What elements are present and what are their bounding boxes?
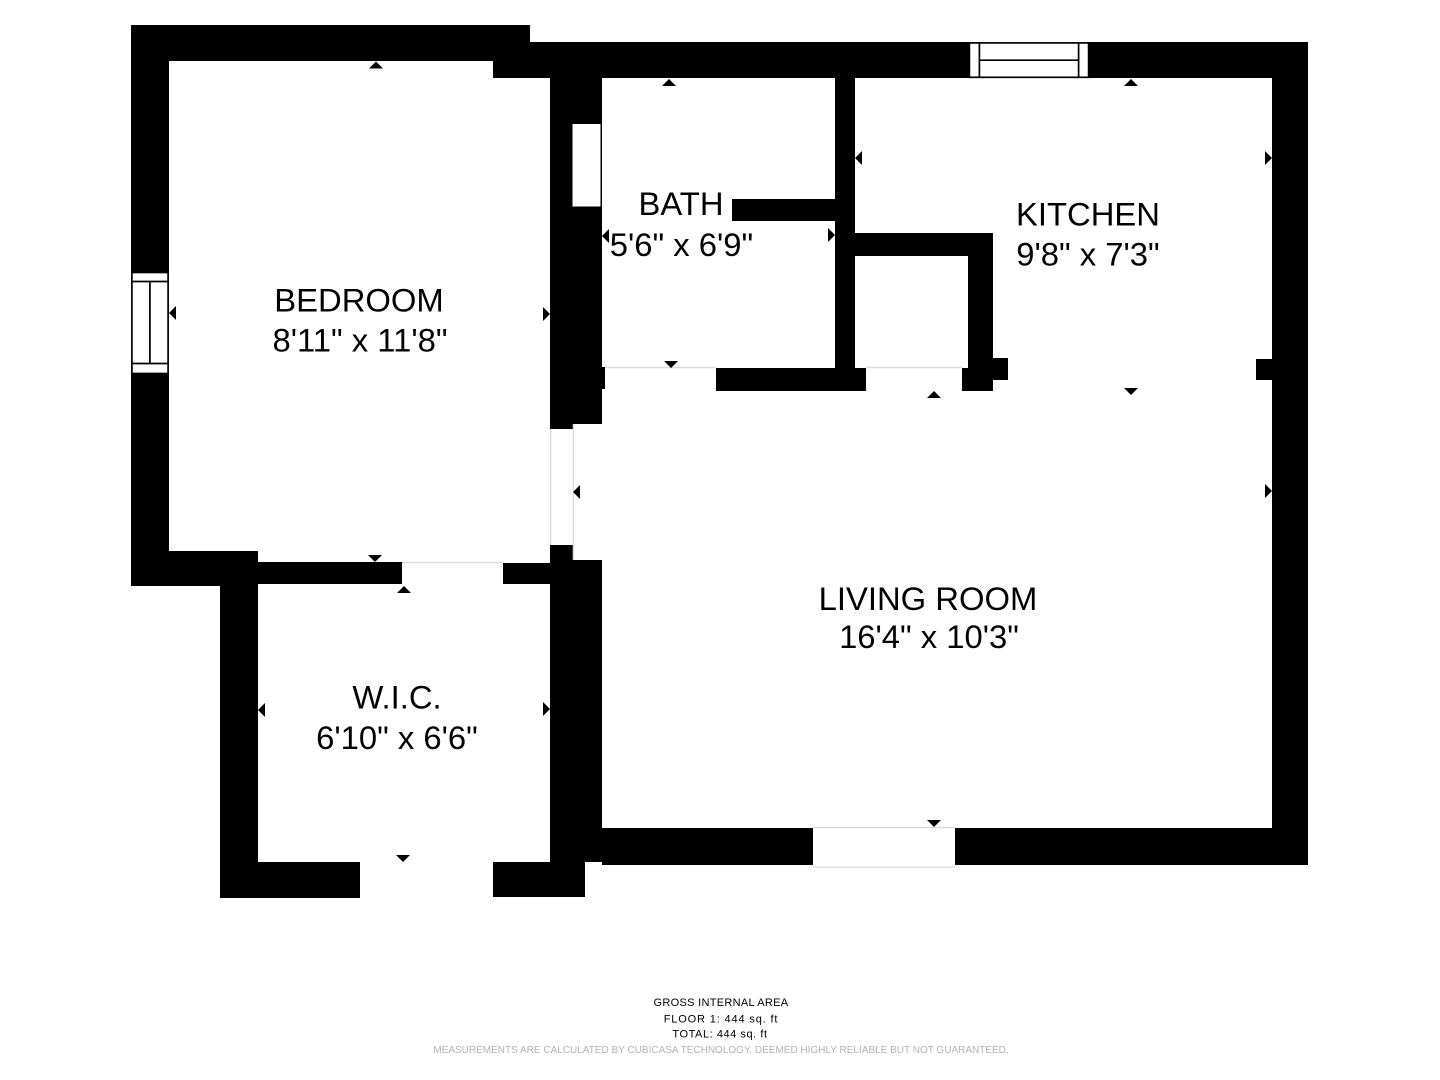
svg-text:FLOOR 1: 444 sq. ft: FLOOR 1: 444 sq. ft: [664, 1013, 779, 1025]
svg-text:LIVING ROOM: LIVING ROOM: [819, 580, 1038, 617]
svg-text:KITCHEN: KITCHEN: [1016, 195, 1160, 232]
svg-text:6'10" x 6'6": 6'10" x 6'6": [316, 719, 478, 756]
svg-text:BEDROOM: BEDROOM: [274, 281, 443, 318]
svg-text:MEASUREMENTS ARE CALCULATED BY: MEASUREMENTS ARE CALCULATED BY CUBICASA …: [433, 1045, 1008, 1056]
svg-text:9'8" x 7'3": 9'8" x 7'3": [1016, 236, 1159, 273]
svg-text:GROSS INTERNAL AREA: GROSS INTERNAL AREA: [654, 997, 789, 1009]
svg-text:5'6" x 6'9": 5'6" x 6'9": [610, 226, 753, 263]
svg-text:BATH: BATH: [638, 185, 723, 222]
svg-text:16'4" x 10'3": 16'4" x 10'3": [839, 618, 1019, 655]
svg-text:TOTAL: 444 sq. ft: TOTAL: 444 sq. ft: [672, 1029, 767, 1041]
svg-text:8'11" x 11'8": 8'11" x 11'8": [272, 322, 447, 359]
svg-text:W.I.C.: W.I.C.: [352, 678, 441, 715]
